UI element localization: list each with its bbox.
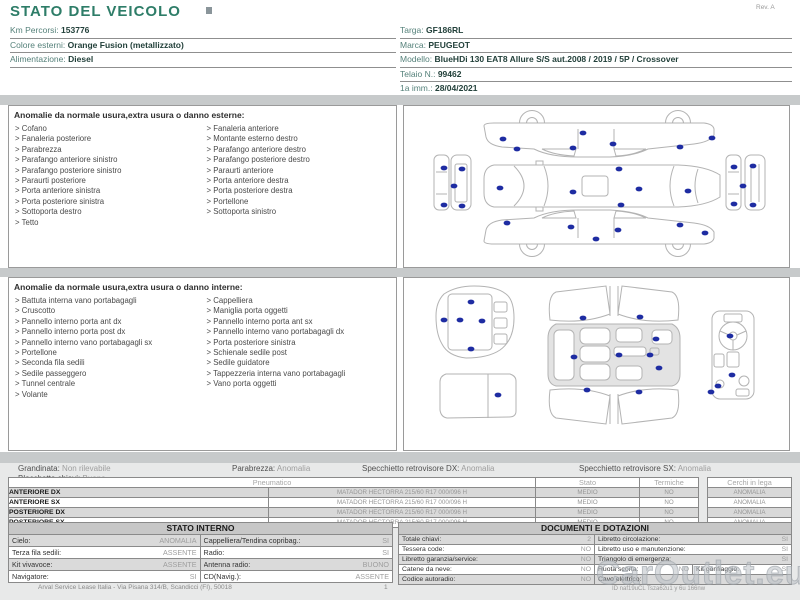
stato-interno-row: Cielo:ANOMALIA Cappelliera/Tendina copri…	[9, 535, 392, 547]
anomaly-item: Tunnel centrale	[15, 379, 197, 389]
exterior-anomalies-title: Anomalie da normale usura,extra usura o …	[14, 110, 391, 120]
documenti-row: Totale chiavi:2 Libretto circolazione:SI	[399, 535, 791, 545]
front-view-shapes	[434, 155, 471, 210]
documenti-dotazioni-title: DOCUMENTI E DOTAZIONI	[399, 523, 791, 535]
exterior-anomalies-col1: Cofano Fanaleria posteriore Parabrezza P…	[9, 124, 201, 228]
cerchi-value: ANOMALIA	[708, 508, 792, 518]
anomaly-item: Maniglia porta oggetti	[207, 306, 393, 316]
revision-label: Rev. A	[756, 4, 775, 11]
anomaly-item: Portellone	[15, 348, 197, 358]
anomaly-item: Fanaleria anteriore	[207, 124, 393, 134]
field-value: 153776	[61, 25, 89, 35]
anomaly-item: Parafango anteriore sinistro	[15, 155, 197, 165]
anomaly-item: Tappezzeria interna vano portabagagli	[207, 369, 393, 379]
field-value: Diesel	[68, 54, 93, 64]
anomaly-item: Sottoporta sinistro	[207, 207, 393, 217]
exterior-anomalies-col2: Fanaleria anteriore Montante esterno des…	[201, 124, 397, 228]
anomaly-item: Parafango posteriore destro	[207, 155, 393, 165]
anomaly-item: Porta anteriore sinistra	[15, 186, 197, 196]
stato-interno-row: Kit vivavoce:ASSENTE Antenna radio:BUONO	[9, 559, 392, 571]
summary-specchietto-sx: Specchietto retrovisore SX: Anomalia	[579, 464, 711, 474]
stato-interno-row: Terza fila sedili:ASSENTE Radio:SI	[9, 547, 392, 559]
cerchi-value: ANOMALIA	[708, 498, 792, 508]
summary-parabrezza: Parabrezza: Anomalia	[232, 464, 310, 474]
column-pneumatico: Pneumatico	[9, 478, 536, 488]
column-cerchi-in-lega: Cerchi in lega	[708, 478, 792, 488]
field-value: PEUGEOT	[428, 40, 470, 50]
field-targa: Targa: GF186RL	[400, 24, 792, 39]
anomaly-item: Pannello interno vano portabagagli sx	[15, 338, 197, 348]
anomaly-item: Sedile guidatore	[207, 358, 393, 368]
field-label: Telaio N.:	[400, 69, 435, 79]
anomaly-item: Schienale sedile post	[207, 348, 393, 358]
trunk-view	[436, 286, 514, 358]
field-alimentazione: Alimentazione: Diesel	[10, 53, 396, 68]
plan-view	[484, 161, 720, 211]
anomaly-item: Sedile passeggero	[15, 369, 197, 379]
divider-band	[0, 268, 800, 277]
documenti-row: Catene da neve:NO Ruota scorta:NO Kit go…	[399, 565, 791, 575]
anomaly-item: Cofano	[15, 124, 197, 134]
documenti-row: Codice autoradio:NO Cavo elettrico:	[399, 575, 791, 584]
vehicle-fields-left: Km Percorsi: 153776 Colore esterni: Oran…	[10, 24, 396, 68]
field-label: Marca:	[400, 40, 426, 50]
anomaly-item: Parafango posteriore sinistro	[15, 166, 197, 176]
anomaly-item: Parabrezza	[15, 145, 197, 155]
footer-page-number: 1	[384, 584, 388, 591]
exterior-car-diagram-svg	[404, 106, 789, 267]
rear-window-view	[440, 374, 516, 418]
interior-anomalies-title: Anomalie da normale usura,extra usura o …	[14, 282, 391, 292]
anomaly-item: Cappelliera	[207, 296, 393, 306]
tyre-table: Pneumatico Stato Termiche ANTERIORE DX M…	[8, 477, 699, 528]
anomaly-item: Battuta interna vano portabagagli	[15, 296, 197, 306]
documenti-dotazioni-table: DOCUMENTI E DOTAZIONI Totale chiavi:2 Li…	[398, 522, 792, 585]
field-label: Colore esterni:	[10, 40, 65, 50]
footer-company-address: Arval Service Lease Italia - Via Pisana …	[38, 584, 232, 591]
stato-interno-row: Navigatore:SI CD(Navig.):ASSENTE	[9, 571, 392, 582]
anomaly-item: Paraurti posteriore	[15, 176, 197, 186]
anomaly-item: Pannello interno porta post dx	[15, 327, 197, 337]
field-marca: Marca: PEUGEOT	[400, 39, 792, 54]
anomaly-item: Porta posteriore sinistra	[15, 197, 197, 207]
interior-anomalies-col2: Cappelliera Maniglia porta oggetti Panne…	[201, 296, 397, 400]
anomaly-item: Paraurti anteriore	[207, 166, 393, 176]
document-code: ID naf19uCL Tsza62u1 y 6u 166nw	[612, 586, 705, 592]
anomaly-item: Vano porta oggetti	[207, 379, 393, 389]
anomaly-item: Montante esterno destro	[207, 134, 393, 144]
documenti-row: Libretto garanzia/service:NO Triangolo d…	[399, 555, 791, 565]
documenti-row: Tessera code:NO Libretto uso e manutenzi…	[399, 545, 791, 555]
field-label: Alimentazione:	[10, 54, 66, 64]
interior-car-diagram-svg	[404, 278, 789, 450]
stato-interno-table: STATO INTERNO Cielo:ANOMALIA Cappelliera…	[8, 522, 393, 583]
anomaly-item: Cruscotto	[15, 306, 197, 316]
anomaly-item: Porta posteriore sinistra	[207, 338, 393, 348]
field-km-percorsi: Km Percorsi: 153776	[10, 24, 396, 39]
interior-anomalies-panel: Anomalie da normale usura,extra usura o …	[8, 277, 397, 451]
anomaly-item: Tetto	[15, 218, 197, 228]
anomaly-item: Volante	[15, 390, 197, 400]
anomaly-item: Porta posteriore destra	[207, 186, 393, 196]
cerchi-in-lega-table: Cerchi in lega ANOMALIA ANOMALIA ANOMALI…	[707, 477, 792, 528]
field-value: Orange Fusion (metallizzato)	[68, 40, 184, 50]
vehicle-fields-right: Targa: GF186RL Marca: PEUGEOT Modello: B…	[400, 24, 792, 97]
tyre-row: ANTERIORE SX MATADOR HECTORRA 215/60 R17…	[9, 498, 699, 508]
field-label: Km Percorsi:	[10, 25, 59, 35]
interior-anomalies-col1: Battuta interna vano portabagagli Crusco…	[9, 296, 201, 400]
vehicle-condition-report: STATO DEL VEICOLO Rev. A Km Percorsi: 15…	[0, 0, 800, 600]
title-marker	[206, 7, 212, 14]
anomaly-item: Porta anteriore destra	[207, 176, 393, 186]
exterior-anomalies-panel: Anomalie da normale usura,extra usura o …	[8, 105, 397, 268]
rear-view-shapes	[726, 155, 765, 210]
side-view-bottom	[484, 210, 714, 257]
anomaly-item: Pannello interno porta ant sx	[207, 317, 393, 327]
field-colore-esterni: Colore esterni: Orange Fusion (metallizz…	[10, 39, 396, 54]
field-label: 1a imm.:	[400, 83, 433, 93]
cabin-unfolded-view	[548, 286, 680, 424]
divider-band	[0, 95, 800, 105]
column-termiche: Termiche	[640, 478, 699, 488]
interior-damage-diagram	[403, 277, 790, 451]
anomaly-item: Pannello interno porta ant dx	[15, 317, 197, 327]
field-value: 28/04/2021	[435, 83, 478, 93]
anomaly-item: Sottoporta destro	[15, 207, 197, 217]
field-label: Modello:	[400, 54, 432, 64]
tyre-row: ANTERIORE DX MATADOR HECTORRA 215/60 R17…	[9, 488, 699, 498]
stato-interno-title: STATO INTERNO	[9, 523, 392, 535]
anomaly-item: Portellone	[207, 197, 393, 207]
summary-specchietto-dx: Specchietto retrovisore DX: Anomalia	[362, 464, 495, 474]
anomaly-item: Pannello interno vano portabagagli dx	[207, 327, 393, 337]
column-stato: Stato	[536, 478, 640, 488]
field-value: GF186RL	[426, 25, 463, 35]
field-label: Targa:	[400, 25, 424, 35]
anomaly-item: Seconda fila sedili	[15, 358, 197, 368]
tyre-table-header: Pneumatico Stato Termiche	[9, 478, 699, 488]
page-title: STATO DEL VEICOLO	[10, 3, 181, 20]
anomaly-item: Parafango anteriore destro	[207, 145, 393, 155]
exterior-damage-diagram	[403, 105, 790, 268]
summary-grandinata: Grandinata: Non rilevabile	[18, 464, 111, 474]
cerchi-value: ANOMALIA	[708, 488, 792, 498]
field-modello: Modello: BlueHDi 130 EAT8 Allure S/S aut…	[400, 53, 792, 68]
field-value: 99462	[438, 69, 462, 79]
tyre-row: POSTERIORE DX MATADOR HECTORRA 215/60 R1…	[9, 508, 699, 518]
anomaly-item: Fanaleria posteriore	[15, 134, 197, 144]
field-telaio: Telaio N.: 99462	[400, 68, 792, 83]
divider-band	[0, 452, 800, 463]
field-value: BlueHDi 130 EAT8 Allure S/S aut.2008 / 2…	[435, 54, 679, 64]
